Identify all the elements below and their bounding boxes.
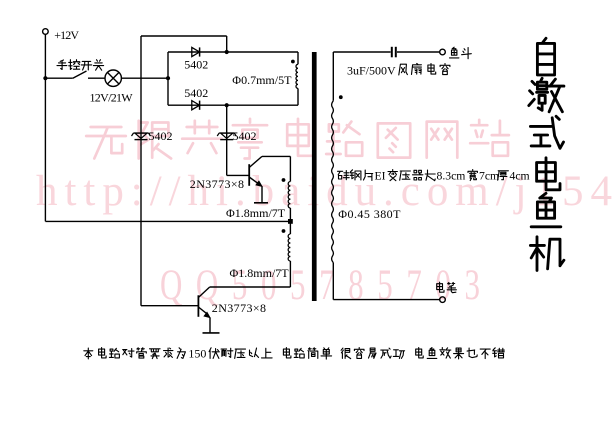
svg-text:4cm: 4cm: [510, 169, 530, 182]
svg-text:3uF/500V: 3uF/500V: [347, 63, 396, 77]
svg-text:EI: EI: [375, 169, 386, 182]
svg-text:Φ1.8mm/7T: Φ1.8mm/7T: [230, 266, 290, 280]
svg-text:2N3773×8: 2N3773×8: [190, 177, 245, 191]
svg-text:Φ1.8mm/7T: Φ1.8mm/7T: [226, 206, 286, 220]
svg-text:150: 150: [188, 347, 206, 361]
svg-text:5402: 5402: [184, 58, 208, 72]
svg-text:7cm: 7cm: [479, 169, 499, 182]
svg-text:12V/21W: 12V/21W: [90, 90, 134, 104]
svg-text:2N3773×8: 2N3773×8: [212, 301, 267, 315]
svg-text:5402: 5402: [184, 86, 208, 100]
svg-text:+12V: +12V: [54, 28, 79, 42]
svg-text:5402: 5402: [233, 129, 257, 143]
svg-text:8.3cm: 8.3cm: [437, 169, 466, 182]
svg-text:Φ0.45 380T: Φ0.45 380T: [338, 207, 401, 221]
svg-text:5402: 5402: [149, 129, 173, 143]
svg-text:Φ0.7mm/5T: Φ0.7mm/5T: [232, 73, 292, 87]
